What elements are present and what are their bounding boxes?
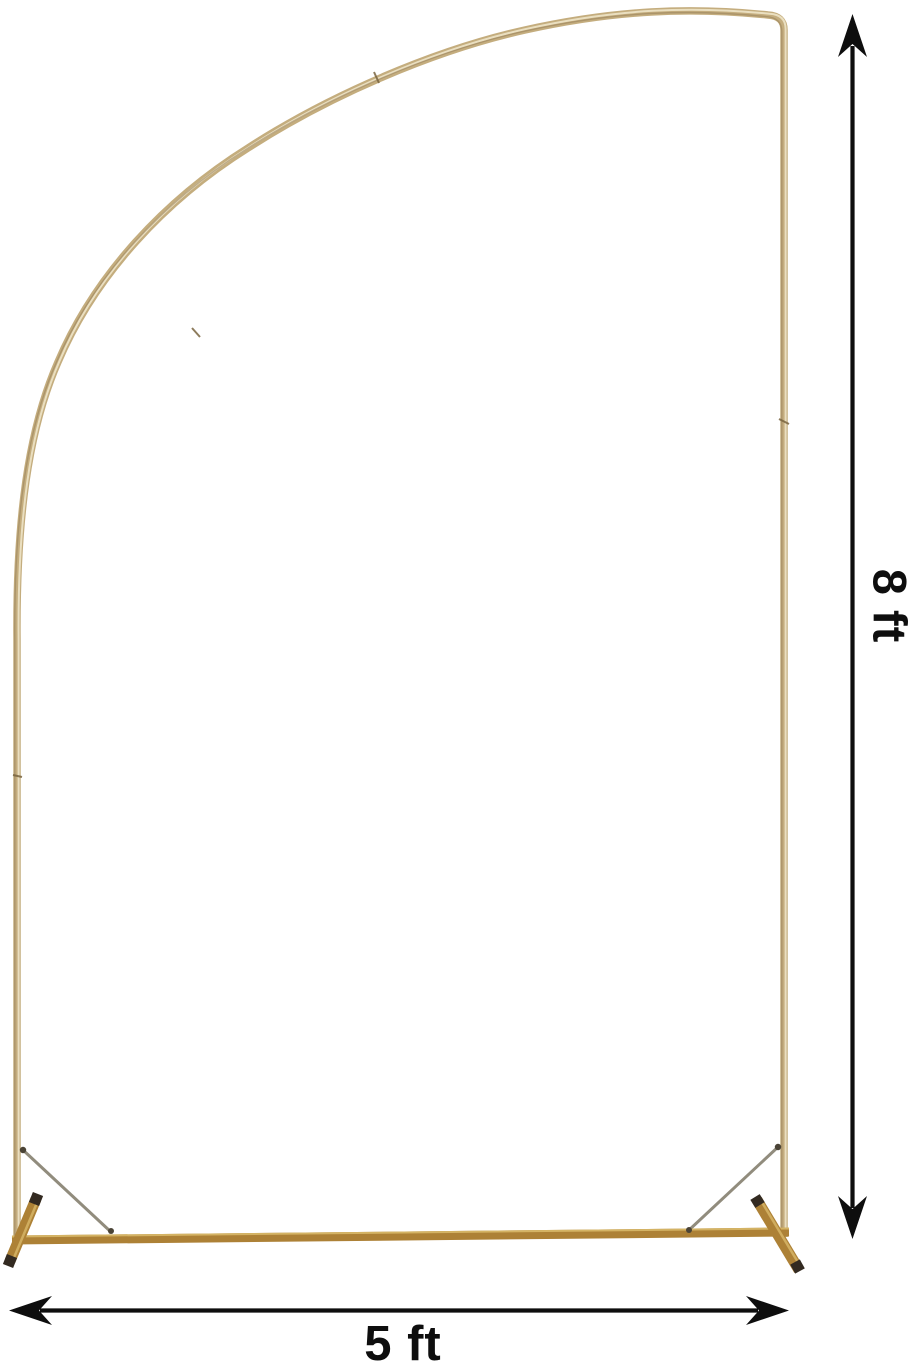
- height-dimension-label: 8 ft: [863, 569, 917, 644]
- brace-screws: [20, 1144, 781, 1234]
- arch-stand-graphic: [0, 0, 917, 1371]
- right-brace-screw-bottom: [686, 1227, 692, 1233]
- left-brace-wire: [23, 1150, 111, 1232]
- product-dimension-image: 8 ft 5 ft: [0, 0, 917, 1371]
- tube-joints: [13, 72, 789, 777]
- left-brace-screw-bottom: [108, 1228, 114, 1234]
- left-foot-cap-bottom: [8, 1256, 12, 1266]
- right-foot-cap-top: [755, 1197, 760, 1205]
- base-assembly: [8, 1144, 802, 1271]
- width-dimension-label: 5 ft: [364, 1316, 442, 1371]
- arch-frame-highlight: [19, 10, 786, 1236]
- left-foot: [8, 1194, 39, 1266]
- arch-frame: [13, 10, 789, 1239]
- support-braces: [23, 1147, 778, 1232]
- joint-curve-lower: [192, 328, 200, 337]
- right-brace-screw-top: [775, 1144, 781, 1150]
- arch-frame-shade: [15, 12, 782, 1238]
- right-foot-cap-bottom: [795, 1262, 800, 1271]
- left-brace-screw-top: [20, 1147, 26, 1153]
- left-foot-cap-top: [34, 1194, 38, 1204]
- arch-frame-tube: [17, 11, 784, 1237]
